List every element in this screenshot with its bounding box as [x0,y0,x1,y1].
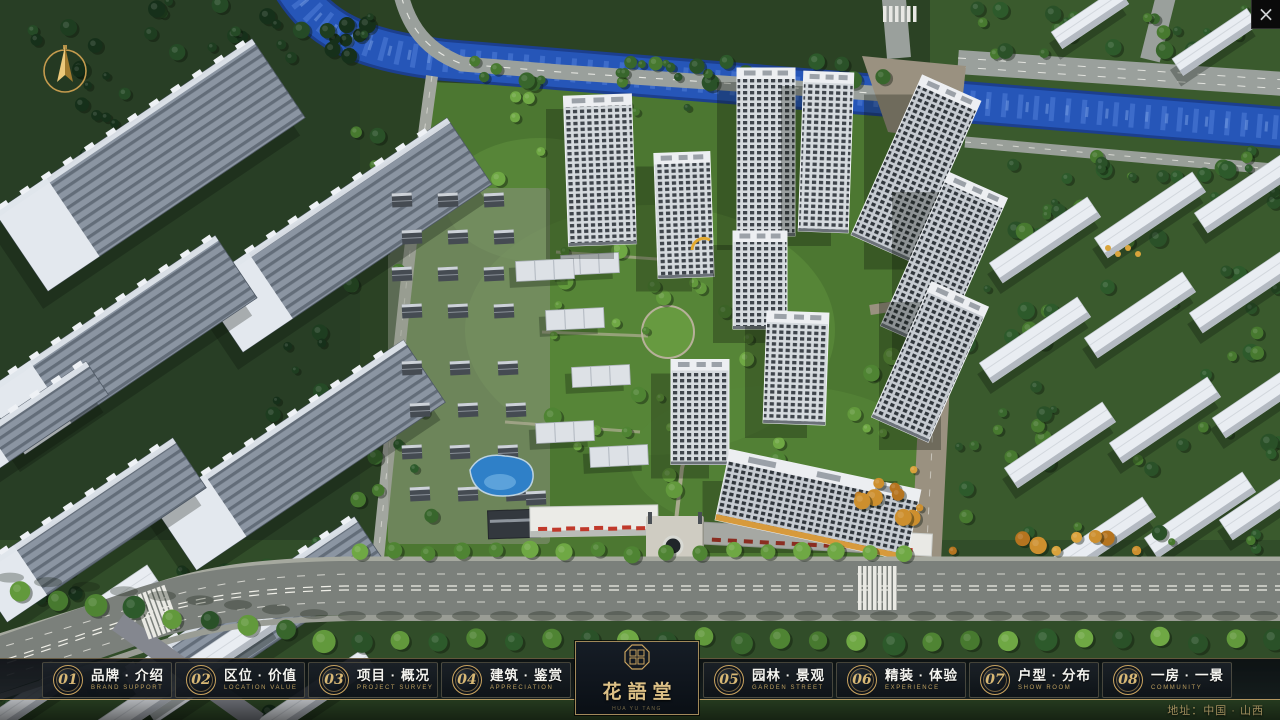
nav-item-subtitle: GARDEN STREET [752,685,825,691]
nav-item-title: 项目 · 概况 [357,669,434,683]
nav-item-subtitle: APPRECIATION [490,685,563,691]
nav-item-title: 品牌 · 介绍 [91,669,164,683]
close-button[interactable]: × [1251,0,1280,29]
app-window: × 地址：中国 · 山西 01 品牌 · 介绍 BRAND SUPPORT 02… [0,0,1280,720]
seal-emblem-icon [624,644,650,675]
address-text: 地址：中国 · 山西 [1167,702,1264,718]
nav-item-number-badge: 08 [1113,665,1143,695]
logo-tagline: HUA YU TANG [612,706,662,712]
nav-item-title: 园林 · 景观 [752,669,825,683]
nav-item-number-badge: 01 [53,665,83,695]
nav-item-subtitle: LOCATION VALUE [224,685,298,691]
logo-title: 花語堂 [596,677,677,704]
nav-item-title: 一房 · 一景 [1151,669,1224,683]
close-icon: × [1258,4,1275,24]
nav-item-subtitle: BRAND SUPPORT [91,685,164,691]
logo-panel[interactable]: 花語堂 HUA YU TANG [575,641,699,715]
nav-item-subtitle: COMMUNITY [1151,685,1224,691]
nav-item-room-view[interactable]: 08 一房 · 一景 COMMUNITY [1102,662,1232,698]
nav-item-subtitle: EXPERIENCE [885,685,958,691]
nav-item-floorplan-distribution[interactable]: 07 户型 · 分布 SHOW ROOM [969,662,1099,698]
masterplan-render [0,0,1280,720]
nav-item-number-badge: 06 [847,665,877,695]
nav-item-subtitle: SHOW ROOM [1018,685,1091,691]
nav-item-title: 户型 · 分布 [1018,669,1091,683]
nav-item-title: 区位 · 价值 [224,669,298,683]
nav-item-number-badge: 04 [452,665,482,695]
nav-item-project-overview[interactable]: 03 项目 · 概况 PROJECT SURVEY [308,662,438,698]
nav-item-subtitle: PROJECT SURVEY [357,685,434,691]
nav-item-number-badge: 07 [980,665,1010,695]
nav-item-brand-intro[interactable]: 01 品牌 · 介绍 BRAND SUPPORT [42,662,172,698]
nav-item-landscape[interactable]: 05 园林 · 景观 GARDEN STREET [703,662,833,698]
nav-group-right: 05 园林 · 景观 GARDEN STREET 06 精装 · 体验 EXPE… [703,659,1232,698]
nav-item-interior-experience[interactable]: 06 精装 · 体验 EXPERIENCE [836,662,966,698]
nav-group-left: 01 品牌 · 介绍 BRAND SUPPORT 02 区位 · 价值 LOCA… [42,659,571,698]
nav-item-number-badge: 03 [319,665,349,695]
nav-item-location-value[interactable]: 02 区位 · 价值 LOCATION VALUE [175,662,305,698]
nav-item-number-badge: 05 [714,665,744,695]
bottom-navbar: 01 品牌 · 介绍 BRAND SUPPORT 02 区位 · 价值 LOCA… [0,658,1280,700]
nav-item-number-badge: 02 [186,665,216,695]
nav-item-title: 精装 · 体验 [885,669,958,683]
nav-item-title: 建筑 · 鉴赏 [490,669,563,683]
nav-item-architecture[interactable]: 04 建筑 · 鉴赏 APPRECIATION [441,662,571,698]
